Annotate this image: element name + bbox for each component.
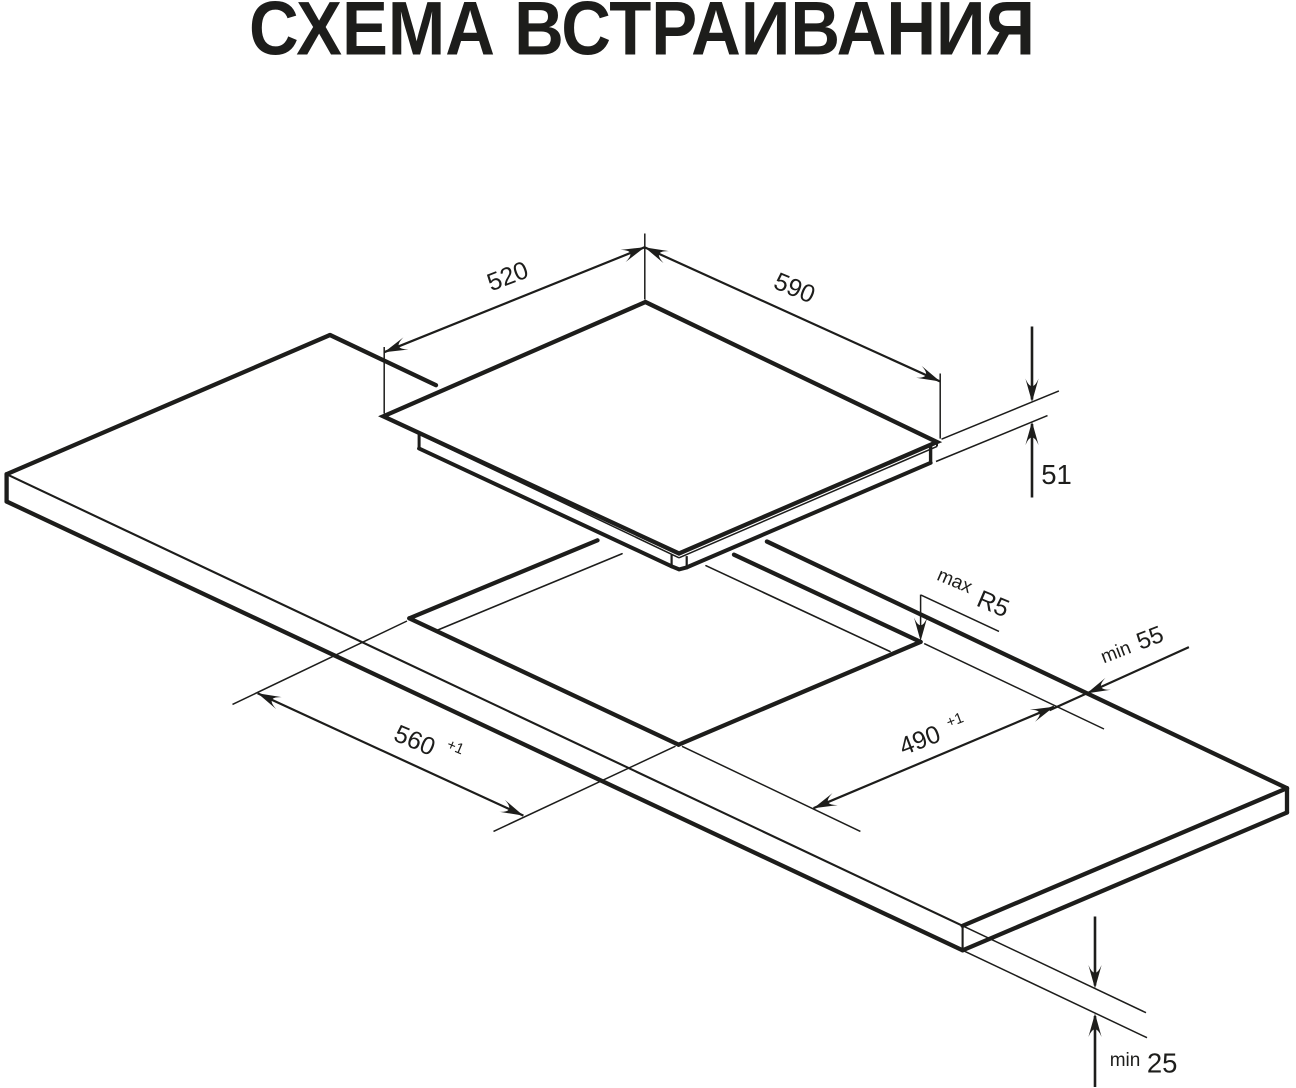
svg-text:СХЕМА ВСТРАИВАНИЯ: СХЕМА ВСТРАИВАНИЯ [249, 0, 1035, 72]
svg-text:min: min [1110, 1050, 1141, 1071]
svg-text:51: 51 [1041, 459, 1072, 490]
svg-text:25: 25 [1147, 1047, 1178, 1078]
